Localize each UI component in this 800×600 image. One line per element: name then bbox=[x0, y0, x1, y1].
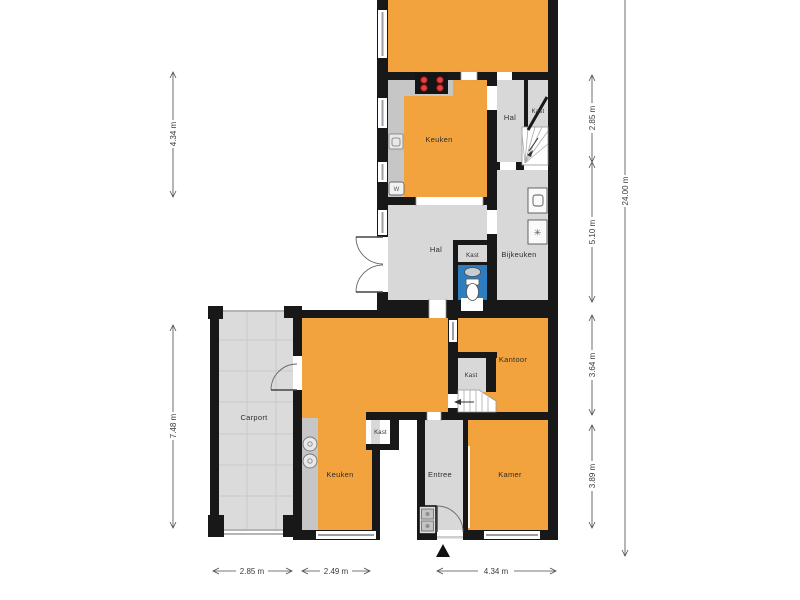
wall-segment bbox=[548, 0, 558, 310]
room-label-carport: Carport bbox=[240, 413, 268, 422]
floorplan-page: W ✳ bbox=[0, 0, 800, 600]
carport-curb-line bbox=[224, 533, 283, 535]
dim-left-1: 4.34 m bbox=[169, 121, 178, 146]
window bbox=[378, 10, 387, 58]
carport-area bbox=[219, 310, 293, 535]
wall-segment bbox=[486, 352, 496, 392]
wall-segment bbox=[293, 310, 558, 318]
carport-curb-line bbox=[224, 529, 283, 531]
french-door-gap bbox=[377, 237, 388, 292]
dim-bottom-3: 4.34 m bbox=[484, 567, 509, 576]
opening bbox=[500, 162, 516, 170]
washing-machine-icon bbox=[528, 188, 547, 213]
room-label-kast-keuken: Kast bbox=[374, 430, 387, 436]
room-label-kast-kantoor: Kast bbox=[465, 373, 478, 379]
wall-segment bbox=[463, 420, 468, 530]
washbasin-icon bbox=[465, 268, 481, 277]
dim-left-2: 7.48 m bbox=[169, 413, 178, 438]
boiler-glyph: W bbox=[394, 187, 400, 193]
wall-segment bbox=[548, 318, 558, 540]
dim-right-3: 3.64 m bbox=[588, 352, 597, 377]
dryer-fan-glyph: ✳ bbox=[534, 228, 542, 238]
toilet-bowl-icon bbox=[467, 284, 479, 301]
dim-right-outer: 24.00 m bbox=[621, 176, 630, 205]
window bbox=[316, 531, 376, 539]
window bbox=[378, 98, 387, 128]
room-label-keuken-bottom: Keuken bbox=[326, 470, 353, 479]
kast-opening bbox=[366, 420, 371, 444]
dim-bottom-1: 2.85 m bbox=[240, 567, 265, 576]
carport-open-edge-top bbox=[222, 310, 284, 312]
wall-segment bbox=[458, 262, 487, 265]
opening bbox=[429, 300, 446, 318]
room-label-hal-mid: Hal bbox=[430, 245, 442, 254]
dryer-icon: ✳ bbox=[528, 220, 547, 244]
room-label-kantoor: Kantoor bbox=[499, 355, 528, 364]
north-arrow-icon bbox=[436, 544, 450, 557]
carport-door-gap bbox=[293, 356, 302, 390]
boiler-icon: W bbox=[389, 182, 404, 195]
wall-segment bbox=[453, 240, 458, 300]
room-keuken-bottom-a bbox=[302, 318, 448, 412]
interior-window bbox=[449, 320, 457, 342]
carport-post bbox=[208, 306, 223, 319]
wall-segment bbox=[487, 80, 497, 300]
wall-segment bbox=[372, 448, 380, 540]
wall-segment bbox=[293, 318, 302, 540]
window bbox=[378, 210, 387, 235]
room-label-kast-mid: Kast bbox=[466, 253, 479, 259]
opening bbox=[427, 412, 441, 420]
wall-segment bbox=[366, 412, 558, 420]
wall-segment bbox=[366, 444, 399, 450]
window bbox=[484, 531, 540, 539]
toilet-fixtures bbox=[465, 268, 481, 301]
room-label-bijkeuken: Bijkeuken bbox=[501, 250, 536, 259]
opening bbox=[487, 210, 497, 234]
carport-wall bbox=[210, 308, 219, 537]
window bbox=[378, 162, 387, 182]
room-label-keuken-top: Keuken bbox=[425, 135, 452, 144]
dim-right-1: 2.85 m bbox=[588, 105, 597, 130]
wall-segment bbox=[524, 80, 528, 132]
dim-right-4: 3.89 m bbox=[588, 463, 597, 488]
room-label-hal-top: Hal bbox=[504, 113, 516, 122]
opening bbox=[416, 197, 483, 205]
meter-cabinet-icon bbox=[419, 506, 436, 534]
opening bbox=[461, 72, 477, 80]
carport-post bbox=[284, 306, 302, 318]
opening bbox=[487, 86, 497, 110]
wall-segment bbox=[453, 240, 497, 245]
threshold bbox=[437, 536, 463, 539]
dim-bottom-2: 2.49 m bbox=[324, 567, 349, 576]
kitchen-counter bbox=[302, 418, 318, 530]
room-label-kamer: Kamer bbox=[498, 470, 522, 479]
dim-right-2: 5.10 m bbox=[588, 219, 597, 244]
sink-icon bbox=[389, 134, 403, 149]
room-living-top bbox=[388, 0, 548, 72]
room-label-entree: Entree bbox=[428, 470, 452, 479]
opening bbox=[497, 72, 512, 80]
floor-plan-drawing: W ✳ bbox=[0, 0, 800, 600]
room-label-kast-top: Kast bbox=[532, 109, 545, 115]
stove-icon bbox=[415, 73, 448, 94]
carport-post bbox=[283, 515, 302, 537]
carport-post bbox=[208, 515, 224, 537]
